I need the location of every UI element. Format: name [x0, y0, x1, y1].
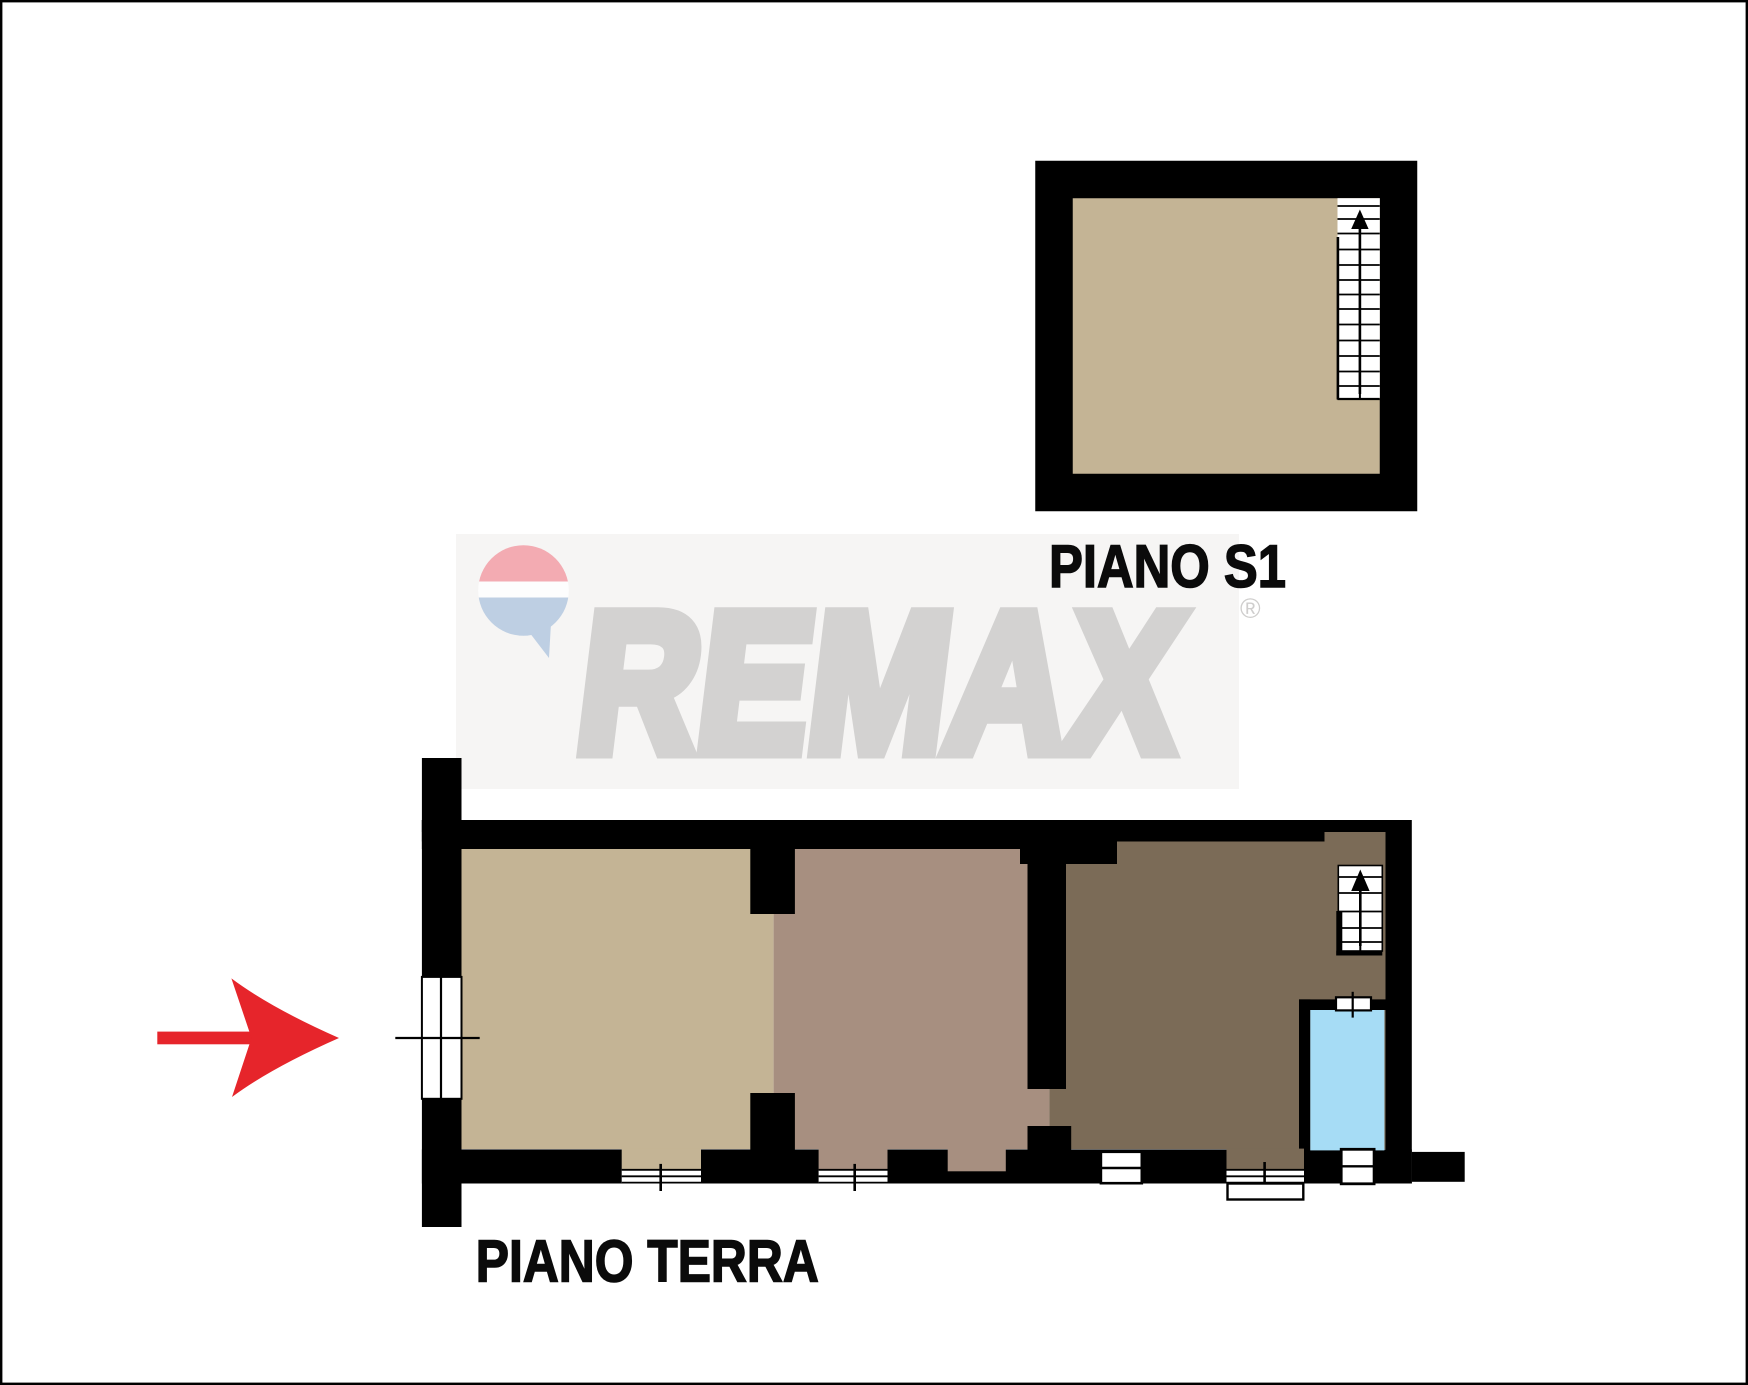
- svg-text:REMAX: REMAX: [567, 573, 1194, 794]
- svg-text:PIANO S1: PIANO S1: [1049, 532, 1286, 600]
- svg-text:PIANO TERRA: PIANO TERRA: [476, 1229, 819, 1295]
